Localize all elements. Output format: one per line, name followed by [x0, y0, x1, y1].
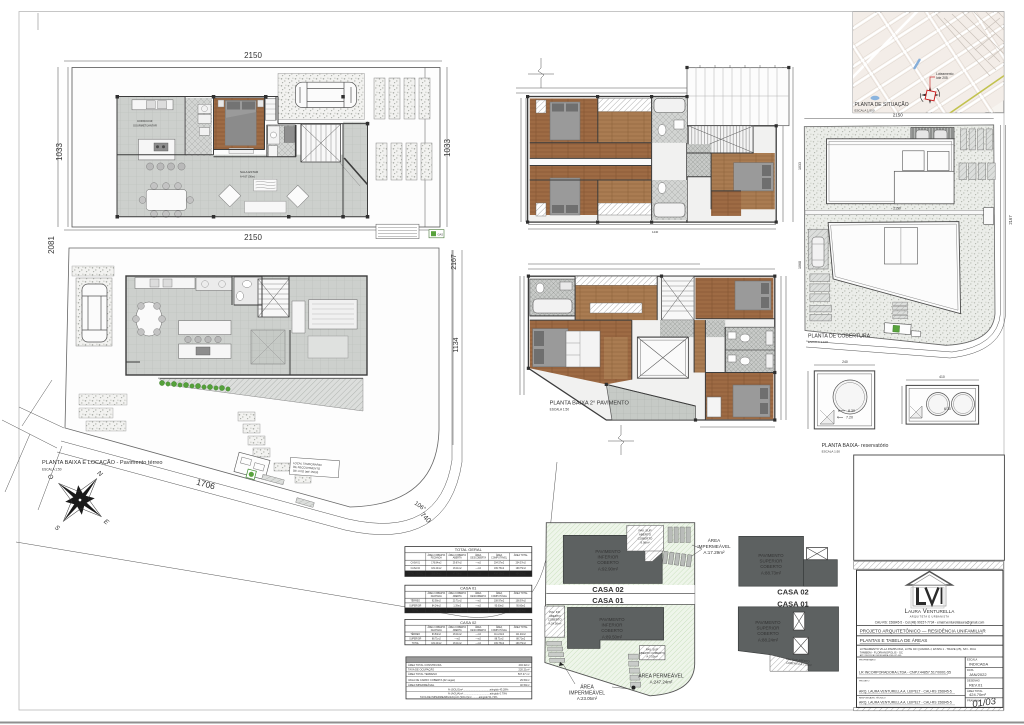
svg-text:A:17.29m²: A:17.29m²: [703, 550, 725, 555]
svg-text:108.97m2: 108.97m2: [494, 601, 505, 603]
svg-text:88.71m2: 88.71m2: [516, 639, 526, 641]
svg-text:84.24m2: 84.24m2: [432, 605, 442, 607]
svg-text:92.90m2: 92.90m2: [432, 601, 442, 603]
svg-text:COBERTO: COBERTO: [760, 564, 782, 569]
svg-text:176.84m2: 176.84m2: [431, 610, 442, 612]
svg-text:PAVIMENTO: PAVIMENTO: [599, 617, 625, 622]
svg-text:A:23.05m²: A:23.05m²: [577, 696, 598, 701]
svg-text:204.57m2: 204.57m2: [494, 610, 505, 612]
svg-text:ÁREA TOTAL: ÁREA TOTAL: [514, 626, 529, 629]
svg-text:A:88.73m²: A:88.73m²: [761, 570, 782, 575]
svg-text:ÁREA COBERTA: ÁREA COBERTA: [427, 626, 445, 629]
svg-text:2167: 2167: [1008, 215, 1013, 225]
svg-text:1033: 1033: [798, 162, 802, 170]
svg-text:1134: 1134: [453, 337, 460, 352]
svg-text:JAN/2022: JAN/2022: [969, 672, 987, 677]
svg-text:A:88.24m²: A:88.24m²: [758, 637, 779, 642]
svg-text:ÁREA: ÁREA: [496, 592, 503, 595]
svg-text:29.67m2: 29.67m2: [453, 563, 463, 565]
svg-text:CASA 02: CASA 02: [411, 567, 421, 570]
svg-text:ARQ. LAURA VENTURELLA A. LEIPE: ARQ. LAURA VENTURELLA A. LEIPELT - CAU-R…: [859, 690, 952, 694]
svg-text:PROJETO: PROJETO: [859, 680, 870, 682]
svg-text:PLANTA BAIXA- reservatório: PLANTA BAIXA- reservatório: [822, 443, 889, 449]
svg-text:---m2: ---m2: [475, 563, 481, 565]
svg-text:204.57m2: 204.57m2: [516, 610, 527, 612]
svg-text:COMPUTÁVEL: COMPUTÁVEL: [491, 595, 508, 598]
svg-text:ABERTA: ABERTA: [453, 595, 462, 598]
svg-text:ESCALA 1:50: ESCALA 1:50: [822, 450, 841, 454]
svg-text:1.39m2: 1.39m2: [453, 605, 461, 607]
svg-text:GOURMET/JANTAR: GOURMET/JANTAR: [133, 124, 157, 128]
svg-text:---m2: ---m2: [475, 634, 481, 636]
svg-text:INFERIOR: INFERIOR: [602, 623, 623, 628]
svg-text:IMPERMEÁVEL: IMPERMEÁVEL: [697, 543, 731, 549]
svg-text:SUPERIOR: SUPERIOR: [409, 605, 421, 607]
svg-text:COMPUTÁVEL: COMPUTÁVEL: [491, 557, 508, 560]
svg-text:ÁREA COBERTA: ÁREA COBERTA: [448, 592, 466, 595]
svg-text:A:92.90m²: A:92.90m²: [598, 566, 619, 571]
svg-text:ÁREA: ÁREA: [496, 626, 503, 629]
svg-text:176.84m2: 176.84m2: [431, 563, 442, 565]
svg-text:PROPRIETÁRIO: PROPRIETÁRIO: [859, 658, 876, 661]
svg-text:ÁREA: ÁREA: [708, 537, 721, 543]
svg-text:---m2: ---m2: [475, 601, 481, 603]
svg-text:TOTAL GERAL: TOTAL GERAL: [408, 573, 424, 576]
svg-text:199.75m2: 199.75m2: [494, 568, 505, 570]
svg-text:COPA/COZ: COPA/COZ: [137, 119, 153, 123]
svg-text:1440: 1440: [652, 230, 659, 234]
svg-text:FECHADA: FECHADA: [431, 557, 442, 560]
svg-text:---m2: ---m2: [475, 574, 481, 576]
svg-text:SUPERIOR: SUPERIOR: [760, 559, 783, 564]
svg-text:93.84m2: 93.84m2: [432, 634, 442, 636]
svg-text:95.60m2: 95.60m2: [495, 605, 505, 607]
svg-text:ÁREA: ÁREA: [475, 592, 482, 595]
svg-text:29.50m²: 29.50m²: [520, 678, 530, 682]
svg-text:ESCALA 1:500: ESCALA 1:500: [855, 109, 875, 113]
svg-text:---m2: ---m2: [475, 610, 481, 612]
svg-text:199.75m2: 199.75m2: [516, 643, 527, 645]
svg-text:240: 240: [842, 360, 848, 364]
svg-text:111.24m2: 111.24m2: [494, 634, 505, 636]
svg-text:GAS: GAS: [438, 233, 444, 237]
svg-text:CASA 02: CASA 02: [460, 620, 477, 625]
svg-text:199.75m2: 199.75m2: [516, 568, 527, 570]
svg-text:A:89.50m²: A:89.50m²: [602, 634, 623, 639]
svg-text:CASA 02: CASA 02: [777, 588, 808, 597]
svg-text:181.24m2: 181.24m2: [431, 568, 442, 570]
svg-text:PLANTAS E TABELA DE ÁREAS: PLANTAS E TABELA DE ÁREAS: [860, 637, 928, 643]
svg-text:47.78m2: 47.78m2: [453, 574, 463, 576]
svg-text:COMPUTÁVEL: COMPUTÁVEL: [491, 629, 508, 632]
svg-text:2150: 2150: [893, 113, 904, 118]
svg-text:ESCALA 1:50: ESCALA 1:50: [42, 468, 62, 472]
svg-text:1033: 1033: [443, 139, 452, 157]
svg-text:TOTAL GERAL: TOTAL GERAL: [455, 547, 483, 552]
svg-text:---m2: ---m2: [475, 643, 481, 645]
svg-text:507.47 m²: 507.47 m²: [518, 672, 530, 676]
svg-text:TÉRREO: TÉRREO: [411, 600, 421, 603]
svg-text:6.30: 6.30: [944, 407, 951, 411]
svg-text:ABERTA: ABERTA: [453, 557, 462, 560]
svg-text:---m2: ---m2: [475, 639, 481, 641]
svg-text:2081: 2081: [47, 236, 56, 254]
svg-text:PAVIMENTO: PAVIMENTO: [595, 549, 621, 554]
svg-text:COBERTO: COBERTO: [601, 628, 623, 633]
svg-text:ÁREA: ÁREA: [475, 626, 482, 629]
svg-text:CASA 01: CASA 01: [411, 562, 421, 565]
svg-text:DESCOBERTA: DESCOBERTA: [470, 629, 486, 632]
svg-text:ÁREA: ÁREA: [496, 554, 503, 557]
svg-text:ESCALA 1:100: ESCALA 1:100: [808, 340, 828, 344]
svg-text:ÁREA: ÁREA: [580, 684, 594, 691]
svg-text:18.11m2: 18.11m2: [453, 634, 462, 636]
svg-text:204.57m2: 204.57m2: [516, 563, 527, 565]
svg-text:COBERTO: COBERTO: [597, 560, 619, 565]
svg-text:FECHADA: FECHADA: [431, 629, 442, 632]
svg-text:VAGA DE CARRO COBERTA (02 vaga: VAGA DE CARRO COBERTA (02 vagas): [408, 678, 455, 682]
svg-text:---m2: ---m2: [475, 568, 481, 570]
svg-text:CASA 02: CASA 02: [592, 585, 623, 594]
svg-text:ÁREA TOTAL CONSTRUIDA: ÁREA TOTAL CONSTRUIDA: [408, 663, 442, 667]
svg-text:PLANTA BAIXA 2° PAVIMENTO: PLANTA BAIXA 2° PAVIMENTO: [550, 401, 630, 407]
svg-text:ABERTA: ABERTA: [453, 629, 462, 632]
svg-text:PAVIMENTO: PAVIMENTO: [758, 553, 784, 558]
svg-text:ÁREA COBERTA: ÁREA COBERTA: [427, 592, 445, 595]
svg-text:% (SOLO)m²....................: % (SOLO)m²..............................…: [448, 687, 509, 691]
svg-text:PLANTA DE SITUAÇÃO: PLANTA DE SITUAÇÃO: [855, 101, 909, 108]
svg-text:18.11m2: 18.11m2: [453, 568, 462, 570]
svg-text:2150: 2150: [893, 206, 901, 210]
svg-text:2150: 2150: [244, 233, 262, 242]
svg-text:204.57m2: 204.57m2: [494, 563, 505, 565]
svg-text:DESCOBERTA: DESCOBERTA: [470, 557, 486, 560]
svg-text:ÁREA TOTAL: ÁREA TOTAL: [514, 592, 529, 595]
svg-text:181.24m2: 181.24m2: [431, 643, 442, 645]
svg-text:199.75m2: 199.75m2: [494, 643, 505, 645]
svg-text:CASA 01: CASA 01: [460, 586, 477, 591]
svg-text:PLANTA DE COBERTURA: PLANTA DE COBERTURA: [808, 334, 871, 340]
svg-text:88.71m2: 88.71m2: [432, 639, 442, 641]
svg-text:404.32m²: 404.32m²: [519, 663, 530, 667]
svg-text:ÁREA COBERTA: ÁREA COBERTA: [427, 554, 445, 557]
svg-text:INDICADA: INDICADA: [969, 661, 988, 666]
svg-text:18.11m2: 18.11m2: [453, 643, 462, 645]
svg-text:ÁREA TOTAL TERRENO: ÁREA TOTAL TERRENO: [408, 672, 437, 676]
svg-text:40.50m²: 40.50m²: [520, 683, 530, 687]
svg-text:A:247.24m²: A:247.24m²: [650, 680, 673, 685]
svg-text:ÁREA PERMEÁVEL: ÁREA PERMEÁVEL: [638, 673, 684, 680]
svg-text:FECHADA: FECHADA: [431, 595, 442, 598]
svg-text:ÁREA TOTAL: ÁREA TOTAL: [514, 554, 529, 557]
svg-text:ÁREA COBERTA: ÁREA COBERTA: [448, 554, 466, 557]
svg-text:DESCOBERTA: DESCOBERTA: [470, 595, 486, 598]
svg-text:---m2: ---m2: [454, 639, 460, 641]
svg-text:A:24.56m²: A:24.56m²: [548, 621, 561, 625]
svg-text:2167: 2167: [451, 254, 458, 270]
svg-text:CASA 01: CASA 01: [592, 596, 623, 605]
svg-text:ESCALA 1:50: ESCALA 1:50: [550, 408, 570, 412]
svg-text:ART. INSCRICAO IMOBILIARIA 426: ART. INSCRICAO IMOBILIARIA 4263-057-409-: [860, 654, 902, 657]
svg-text:7.20: 7.20: [846, 416, 853, 420]
svg-text:2150: 2150: [244, 51, 262, 60]
svg-text:111.24m2: 111.24m2: [516, 634, 527, 636]
svg-text:lote 205: lote 205: [936, 76, 948, 80]
svg-text:% (AGUA)m²....................: % (AGUA)m²..............................…: [448, 692, 508, 696]
svg-text:88.71m2: 88.71m2: [495, 639, 505, 641]
svg-text:PAVIMENTO: PAVIMENTO: [755, 620, 781, 625]
svg-text:29.67m2: 29.67m2: [453, 610, 463, 612]
svg-text:410: 410: [939, 375, 945, 379]
svg-text:A 4.67 (36m): A 4.67 (36m): [240, 175, 255, 179]
svg-text:CAU-RS: 156845-5 - Cel:(48) 99: CAU-RS: 156845-5 - Cel:(48) 99157-7734 -…: [875, 620, 985, 624]
svg-text:ÁREA COBERTA: ÁREA COBERTA: [448, 626, 466, 629]
svg-text:TOTAL: TOTAL: [412, 642, 420, 645]
svg-text:23.71m2: 23.71m2: [453, 601, 463, 603]
svg-text:PLANTA BAIXA E LOCAÇÃO - Pavim: PLANTA BAIXA E LOCAÇÃO - Pavimento térre…: [42, 459, 163, 466]
svg-text:---m2: ---m2: [475, 605, 481, 607]
svg-text:1068: 1068: [798, 261, 802, 269]
svg-text:INFERIOR: INFERIOR: [598, 555, 619, 560]
svg-text:SUPERIOR: SUPERIOR: [757, 626, 780, 631]
svg-text:TAMBEM - FLORIANOPOLIS - SC: TAMBEM - FLORIANOPOLIS - SC: [860, 650, 903, 654]
svg-text:SUPERIOR: SUPERIOR: [409, 639, 421, 641]
svg-text:TÉRREO: TÉRREO: [411, 633, 421, 636]
svg-text:SALA ESTAR: SALA ESTAR: [240, 170, 259, 174]
svg-text:95.60m2: 95.60m2: [516, 605, 526, 607]
svg-text:ARQ. LAURA VENTURELLA A. LEIPE: ARQ. LAURA VENTURELLA A. LEIPELT - CAU-R…: [859, 701, 952, 705]
svg-text:404.32m2: 404.32m2: [516, 574, 527, 576]
svg-text:108.97m2: 108.97m2: [516, 601, 527, 603]
svg-text:REV.01: REV.01: [969, 682, 983, 687]
svg-text:RESPONSÁVEL TÉCNICO: RESPONSÁVEL TÉCNICO: [859, 697, 886, 700]
svg-text:A:7.55m²: A:7.55m²: [646, 655, 657, 659]
svg-text:9.06m²: 9.06m²: [640, 541, 649, 545]
svg-text:COBERTO: COBERTO: [757, 631, 779, 636]
svg-text:1033: 1033: [55, 143, 64, 161]
svg-text:ÁREA IMPERMEÁVEL: ÁREA IMPERMEÁVEL: [408, 683, 435, 687]
svg-text:424.70m²: 424.70m²: [969, 692, 987, 697]
svg-text:ÁREA: ÁREA: [475, 554, 482, 557]
svg-text:ARQUITETA E URBANISTA: ARQUITETA E URBANISTA: [910, 616, 950, 619]
svg-text:358.04m2: 358.04m2: [431, 574, 442, 576]
svg-text:TOTAL: TOTAL: [412, 609, 420, 612]
svg-text:LR INCORPORADORA LTDA - CNPJ:4: LR INCORPORADORA LTDA - CNPJ:44857.517/0…: [859, 671, 951, 675]
svg-text:8.30: 8.30: [848, 409, 855, 413]
svg-text:404.32m2: 404.32m2: [494, 574, 505, 576]
svg-text:PROJETO ARQUITETÔNICO — RESIDÊ: PROJETO ARQUITETÔNICO — RESIDÊNCIA UNIFA…: [860, 626, 987, 633]
svg-text:220.21m²: 220.21m²: [519, 668, 530, 672]
